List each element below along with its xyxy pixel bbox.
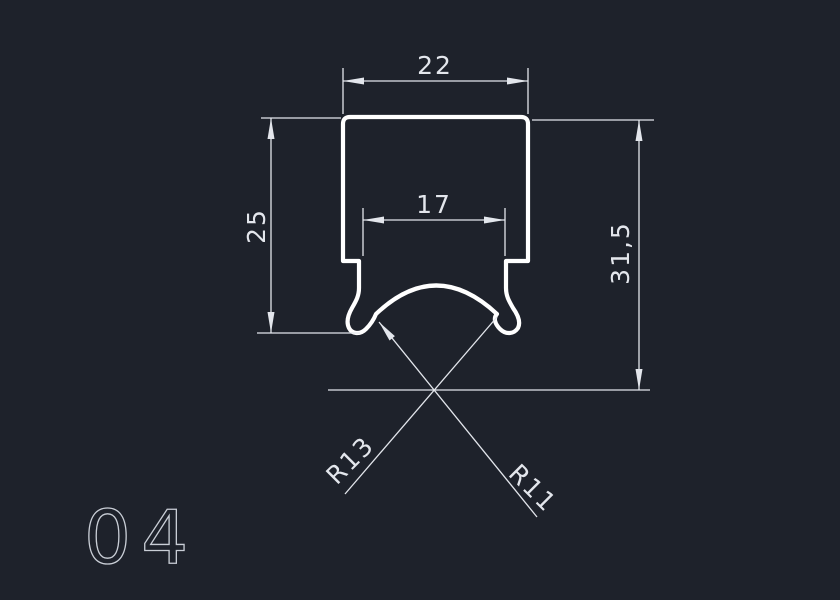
arrowhead-right [507,78,528,85]
arrowhead-bottom [268,312,275,333]
arrowhead-top [268,118,275,139]
dimension-label-31-5: 31,5 [606,221,635,285]
radius-label-r11: R11 [503,458,563,518]
radius-label-r13: R13 [320,430,380,490]
profile-drawing: 22 17 25 31,5 R13 R11 04 [0,0,840,600]
arrowhead-right [484,217,505,224]
arrowhead-r11 [379,322,395,341]
drawing-number: 04 [84,495,198,581]
arrowhead-left [363,217,384,224]
radius-leaders: R13 R11 [320,317,562,518]
dimension-inner-width: 17 [363,190,505,256]
dimension-label-17: 17 [416,190,452,219]
arrowhead-left [343,78,364,85]
cad-drawing-canvas[interactable]: 22 17 25 31,5 R13 R11 04 [0,0,840,600]
arrowhead-bottom [636,369,643,390]
dimension-top-width: 22 [343,51,528,114]
profile-outline [343,117,528,333]
leader-r13 [345,317,497,494]
dimension-label-25: 25 [242,208,271,244]
arrowhead-top [636,120,643,141]
dimension-total-height: 31,5 [328,120,654,390]
dimension-label-22: 22 [417,51,453,80]
